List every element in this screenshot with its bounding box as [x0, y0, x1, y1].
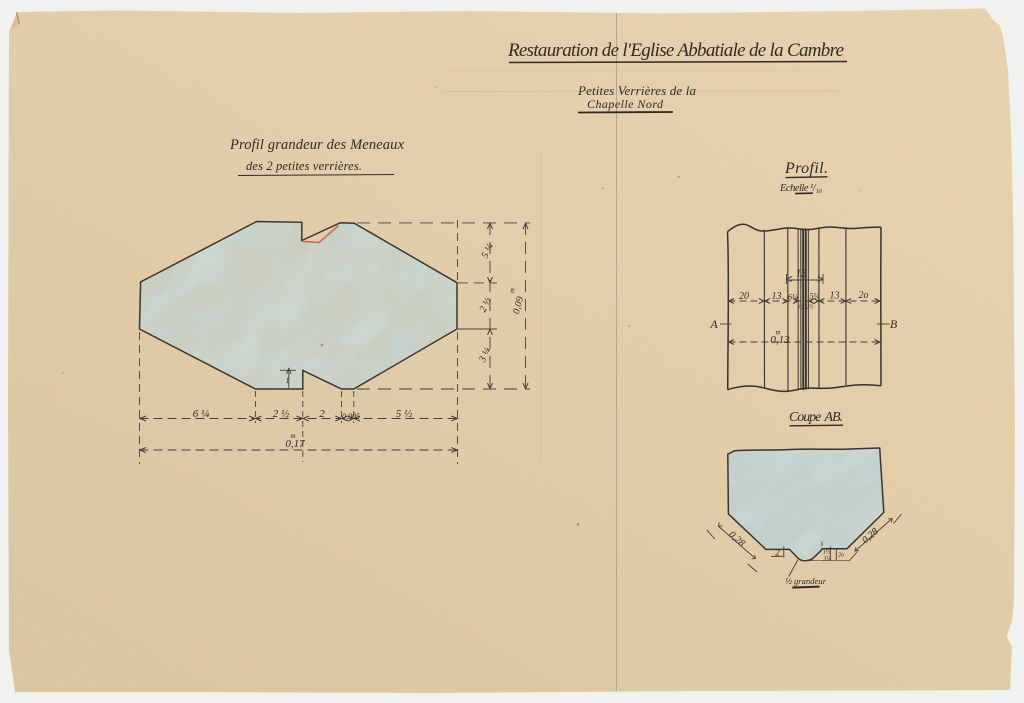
svg-text:2o: 2o	[838, 553, 844, 559]
svg-text:13: 13	[772, 291, 782, 302]
svg-text:2: 2	[319, 408, 325, 420]
svg-text:2 ½: 2 ½	[273, 408, 290, 420]
svg-text:Petites Verrières de la: Petites Verrières de la	[577, 83, 697, 98]
svg-text:Profil.: Profil.	[784, 160, 828, 177]
svg-text:20: 20	[739, 291, 749, 302]
svg-text:B: B	[890, 317, 898, 331]
svg-text:m: m	[290, 432, 295, 440]
svg-text:13: 13	[830, 291, 840, 302]
svg-text:6¼: 6¼	[788, 293, 798, 302]
svg-text:m: m	[775, 329, 780, 337]
svg-text:2o: 2o	[859, 290, 869, 301]
svg-text:Profil grandeur des Meneaux: Profil grandeur des Meneaux	[229, 137, 405, 153]
svg-text:½: ½	[785, 576, 792, 586]
svg-text:des 2 petites verrières.: des 2 petites verrières.	[246, 159, 362, 173]
svg-text:1: 1	[286, 376, 290, 385]
svg-text:1½: 1½	[823, 549, 831, 556]
svg-text:grandeur: grandeur	[794, 576, 827, 586]
svg-text:Echelle ¹/₁₀: Echelle ¹/₁₀	[779, 183, 822, 194]
svg-text:2: 2	[775, 548, 780, 558]
svg-text:Coupe AB.: Coupe AB.	[789, 410, 843, 425]
svg-text:6 ¼: 6 ¼	[193, 408, 210, 420]
svg-text:A: A	[709, 317, 718, 331]
svg-text:3¼: 3¼	[822, 557, 831, 563]
svg-text:12: 12	[796, 269, 806, 280]
svg-text:Restauration de l'Eglise Abbat: Restauration de l'Eglise Abbatiale de la…	[507, 40, 844, 61]
svg-text:5¼: 5¼	[810, 292, 820, 301]
svg-text:5 ½: 5 ½	[396, 408, 413, 420]
svg-text:0,005: 0,005	[342, 412, 360, 421]
svg-text:0,02½: 0,02½	[799, 304, 815, 311]
svg-text:Chapelle Nord: Chapelle Nord	[587, 97, 664, 111]
